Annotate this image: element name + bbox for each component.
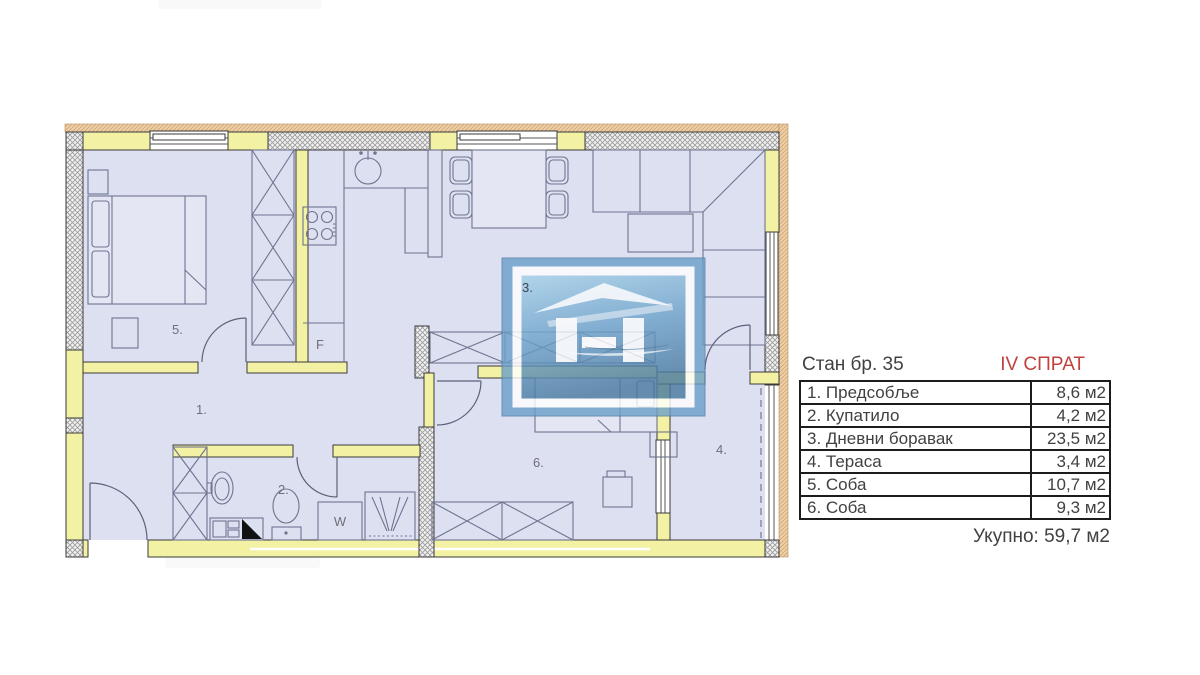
dining-table [472,150,546,228]
label-hallway: 1. [196,402,207,417]
window-room6-terrace [656,440,670,513]
label-bedroom6: 6. [533,455,544,470]
room-name: 1. Предсобље [801,382,1030,403]
floor-label: IV СПРАТ [1000,354,1085,376]
label-bathroom: 2. [278,482,289,497]
total-area: Укупно: 59,7 м2 [799,526,1111,548]
room-area: 4,2 м2 [1030,405,1109,426]
window-dining [457,131,557,150]
room-name: 4. Тераса [801,451,1030,472]
floor-plan: W [0,0,1200,675]
room-name: 3. Дневни боравак [801,428,1030,449]
table-row: 5. Соба 10,7 м2 [801,474,1109,497]
room-area: 23,5 м2 [1030,428,1109,449]
room-area: 3,4 м2 [1030,451,1109,472]
room-area: 10,7 м2 [1030,474,1109,495]
room-name: 2. Купатило [801,405,1030,426]
window-living-right [766,232,778,335]
label-bedroom5: 5. [172,322,183,337]
window-bedroom5 [150,131,228,150]
apartment-title: Стан бр. 35 [802,354,904,376]
table-row: 4. Тераса 3,4 м2 [801,451,1109,474]
room-name: 6. Соба [801,497,1030,518]
table-row: 3. Дневни боравак 23,5 м2 [801,428,1109,451]
table-row: 1. Предсобље 8,6 м2 [801,382,1109,405]
table-row: 6. Соба 9,3 м2 [801,497,1109,518]
legend-header: Стан бр. 35 IV СПРАТ [799,354,1111,380]
table-row: 2. Купатило 4,2 м2 [801,405,1109,428]
floorplan-page: W [0,0,1200,675]
label-living: 3. [522,280,533,295]
terrace-railing [769,385,774,540]
apartment-legend: Стан бр. 35 IV СПРАТ 1. Предсобље 8,6 м2… [799,354,1111,548]
label-fridge: F [316,337,324,352]
area-table: 1. Предсобље 8,6 м2 2. Купатило 4,2 м2 3… [799,380,1111,520]
svg-text:W: W [334,514,347,529]
room-area: 8,6 м2 [1030,382,1109,403]
double-bed [88,196,206,304]
room-area: 9,3 м2 [1030,497,1109,518]
room-name: 5. Соба [801,474,1030,495]
label-terrace: 4. [716,442,727,457]
